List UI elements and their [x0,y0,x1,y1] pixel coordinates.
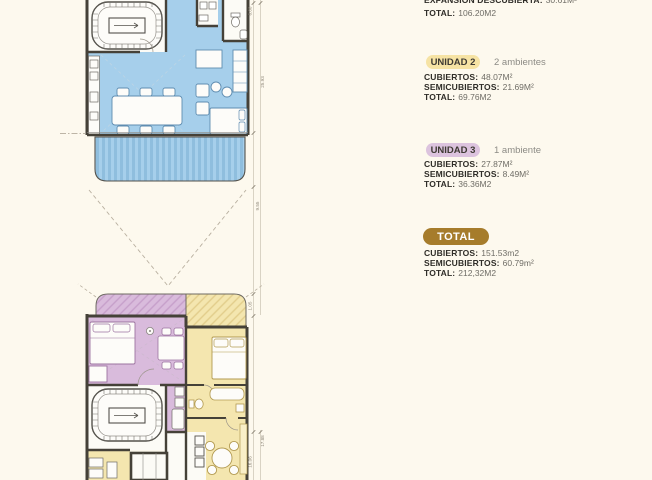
unit1-total-line: TOTAL:106.20M2 [424,8,496,18]
unidad2-rows: CUBIERTOS:48.07M² SEMICUBIERTOS:21.69M² … [424,72,534,102]
terrace-unit2 [186,294,246,327]
total-total: TOTAL:212,32M2 [424,268,534,278]
unidad2-badge: UNIDAD 2 [426,55,480,69]
total-semicubiertos: SEMICUBIERTOS:60.79m² [424,258,534,268]
unit1-total-value: 106.20M2 [458,8,496,18]
dining-set-upper [112,88,182,134]
unit1-expansion-line: EXPANSIÓN DESCUBIERTA:30.61M² [424,0,577,5]
unidad2-semicubiertos: SEMICUBIERTOS:21.69M² [424,82,534,92]
unidad3-badge: UNIDAD 3 [426,143,480,157]
dim-bottom-inner: 16.06 [247,456,252,468]
unidad3-cubiertos: CUBIERTOS:27.87M² [424,159,529,169]
unit1-total-label: TOTAL: [424,8,455,18]
total-rows: CUBIERTOS:151.53m2 SEMICUBIERTOS:60.79m²… [424,248,534,278]
terrace-unit3 [96,294,186,316]
dimension-lines: 6.00 25.93 9.55 1.05 17.88 16.06 [247,0,265,480]
elevator [131,453,167,480]
unidad3-rooms: 1 ambiente [494,145,541,156]
staircase-lower [92,389,162,441]
dim-terrace: 1.05 [247,301,252,310]
unidad2-total: TOTAL:69.76M2 [424,92,534,102]
lower-floor-plan [78,284,264,480]
dim-bottom-outer: 17.88 [260,435,265,447]
balcony [95,137,245,181]
unidad3-rows: CUBIERTOS:27.87M² SEMICUBIERTOS:8.49M² T… [424,159,529,189]
unidad3-semicubiertos: SEMICUBIERTOS:8.49M² [424,169,529,179]
staircase-upper [92,2,162,49]
unidad3-total: TOTAL:36.36M2 [424,179,529,189]
floor-plan-drawing: 6.00 25.93 9.55 1.05 17.88 16.06 [0,0,420,480]
dim-top-lower: 9.55 [255,201,260,210]
corridor-shelves [195,436,204,467]
total-badge: TOTAL [423,228,489,245]
projection-dashes [89,190,246,286]
upper-floor-plan [60,0,248,286]
unit1-expansion-value: 30.61M² [546,0,577,5]
total-cubiertos: CUBIERTOS:151.53m2 [424,248,534,258]
dining-unit3 [158,328,184,369]
dim-top-inner: 6.00 [247,6,252,15]
unidad2-cubiertos: CUBIERTOS:48.07M² [424,72,534,82]
bedroom-unit2 [212,337,246,379]
dim-top-span: 25.93 [260,76,265,88]
unit1-expansion-label: EXPANSIÓN DESCUBIERTA: [424,0,543,5]
unidad2-rooms: 2 ambientes [494,57,546,68]
kitchen-upper [89,56,100,134]
